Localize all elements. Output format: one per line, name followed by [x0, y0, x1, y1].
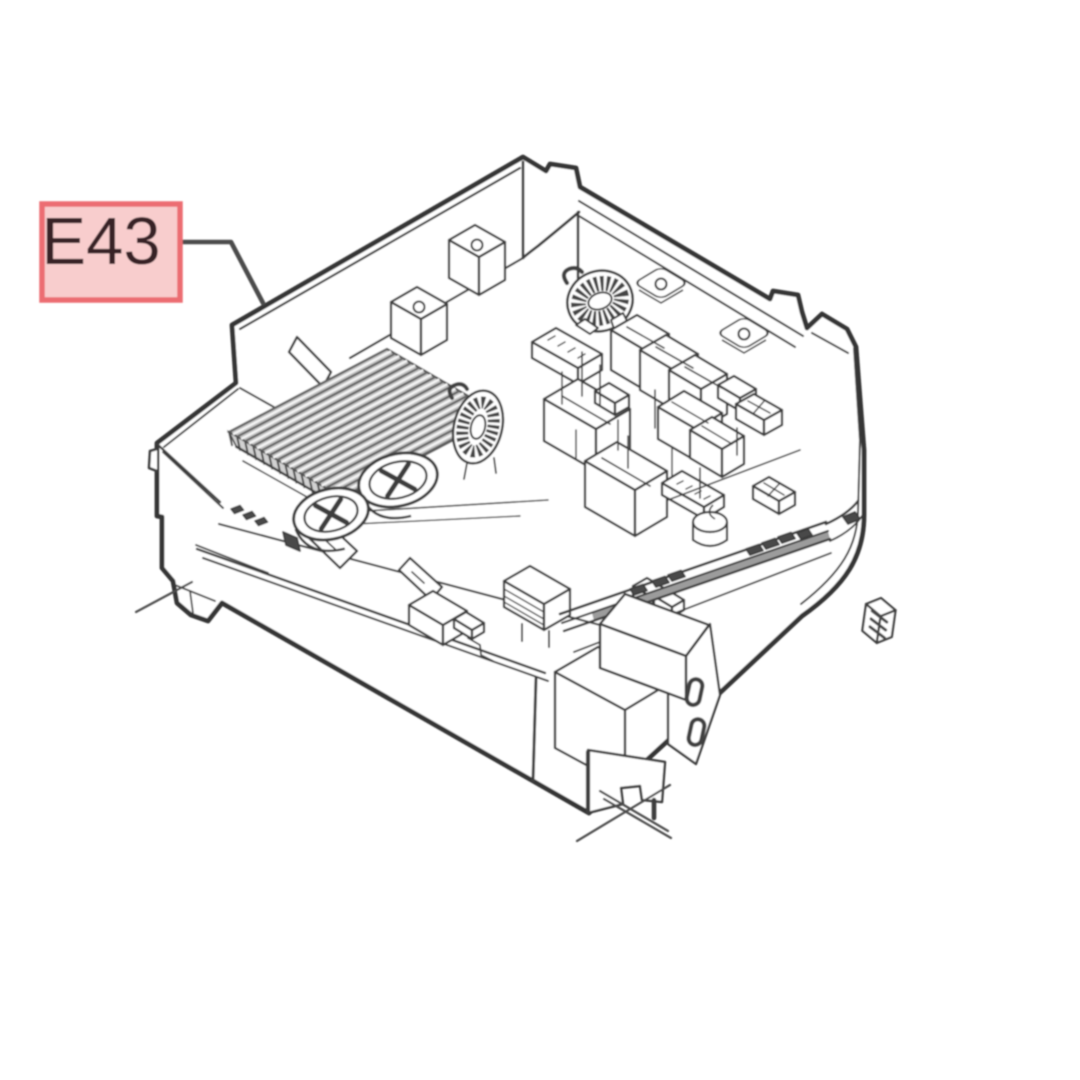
svg-text:E43: E43	[41, 204, 160, 279]
